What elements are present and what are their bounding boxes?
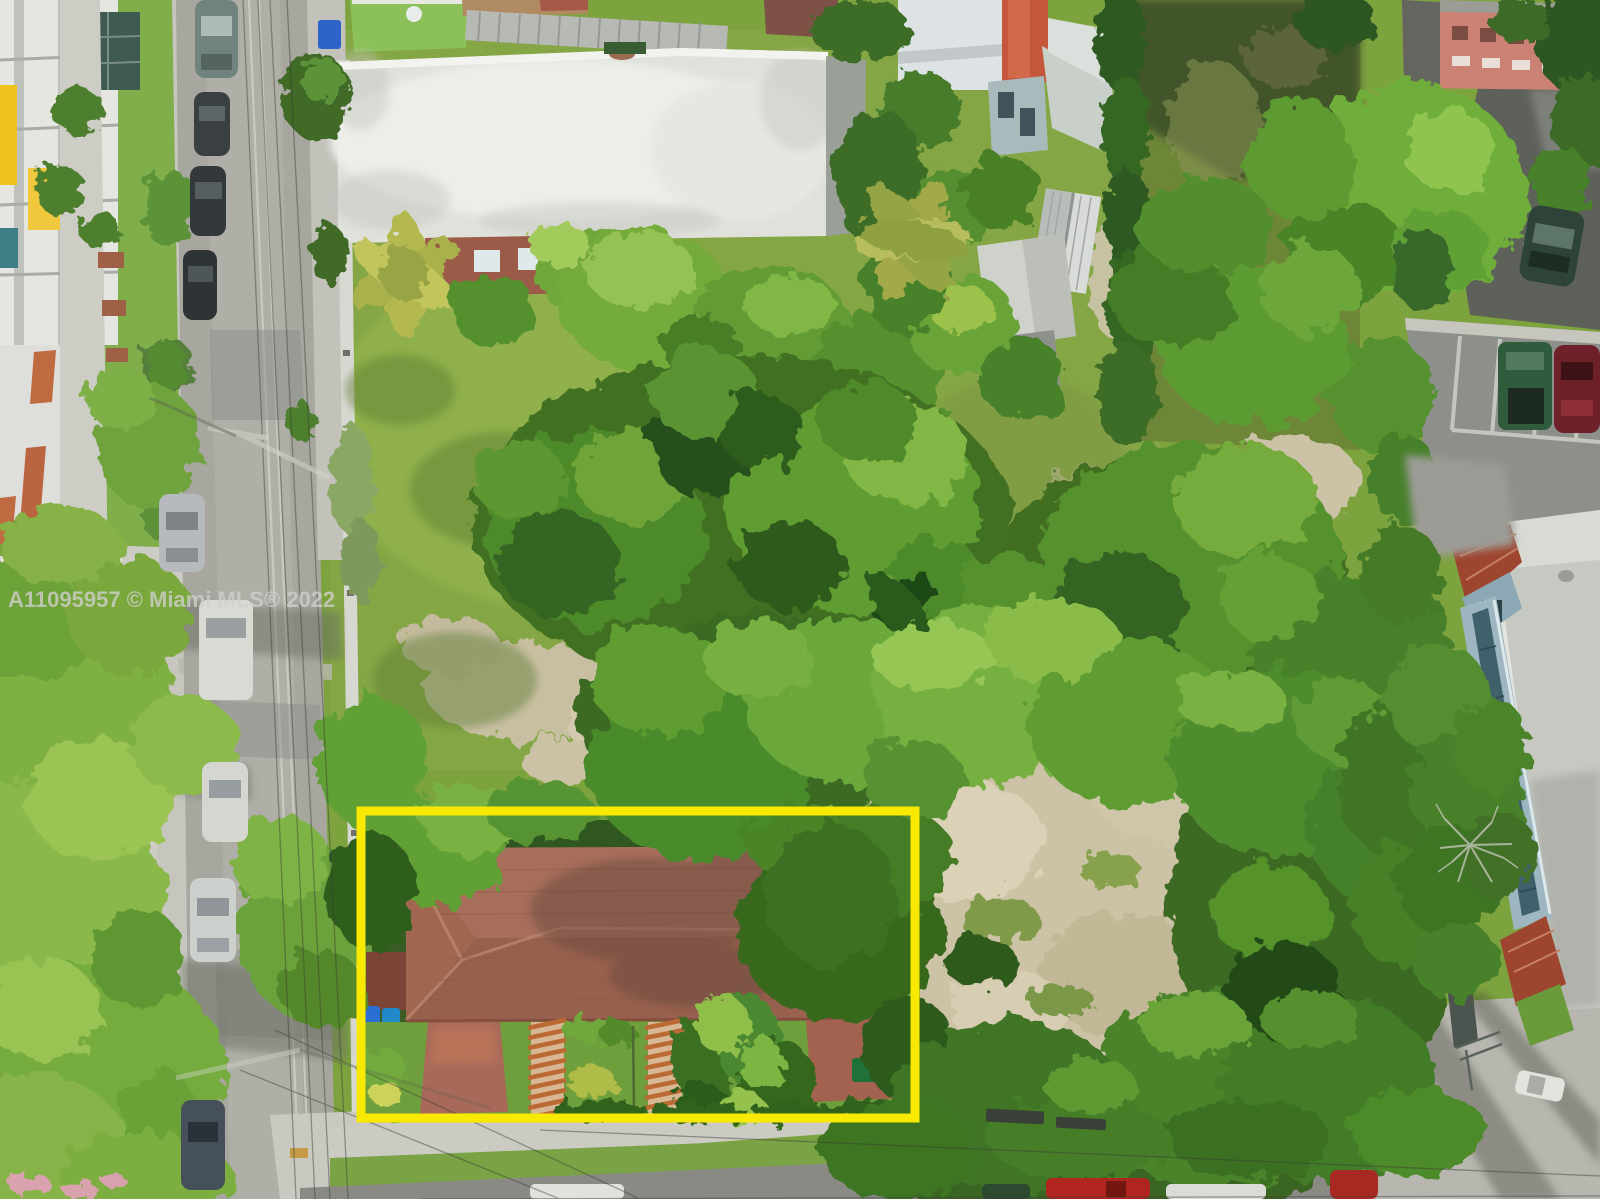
svg-text:A11095957 © Miami MLS® 2022: A11095957 © Miami MLS® 2022: [8, 587, 335, 612]
